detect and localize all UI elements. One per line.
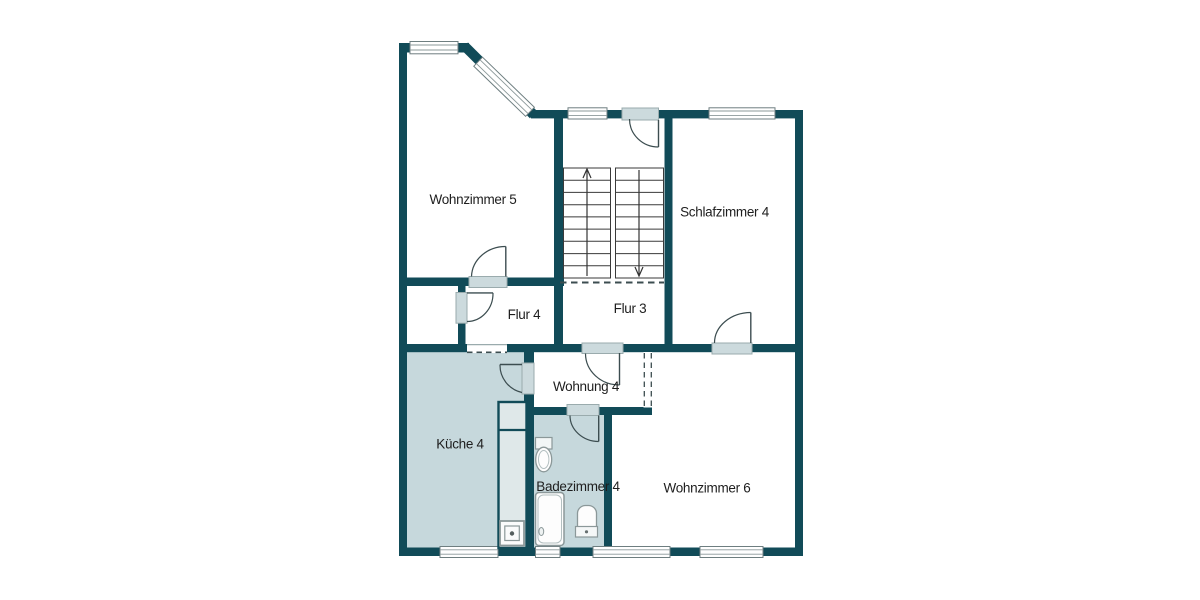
svg-text:Badezimmer 4: Badezimmer 4 bbox=[536, 479, 620, 494]
svg-text:Wohnzimmer 6: Wohnzimmer 6 bbox=[664, 481, 751, 496]
svg-text:Flur 4: Flur 4 bbox=[508, 307, 542, 322]
svg-text:Wohnzimmer 5: Wohnzimmer 5 bbox=[430, 192, 517, 207]
svg-text:Küche 4: Küche 4 bbox=[436, 437, 484, 452]
svg-text:Flur 3: Flur 3 bbox=[614, 301, 647, 316]
svg-text:Schlafzimmer 4: Schlafzimmer 4 bbox=[680, 205, 770, 220]
svg-text:Wohnung 4: Wohnung 4 bbox=[553, 379, 620, 394]
